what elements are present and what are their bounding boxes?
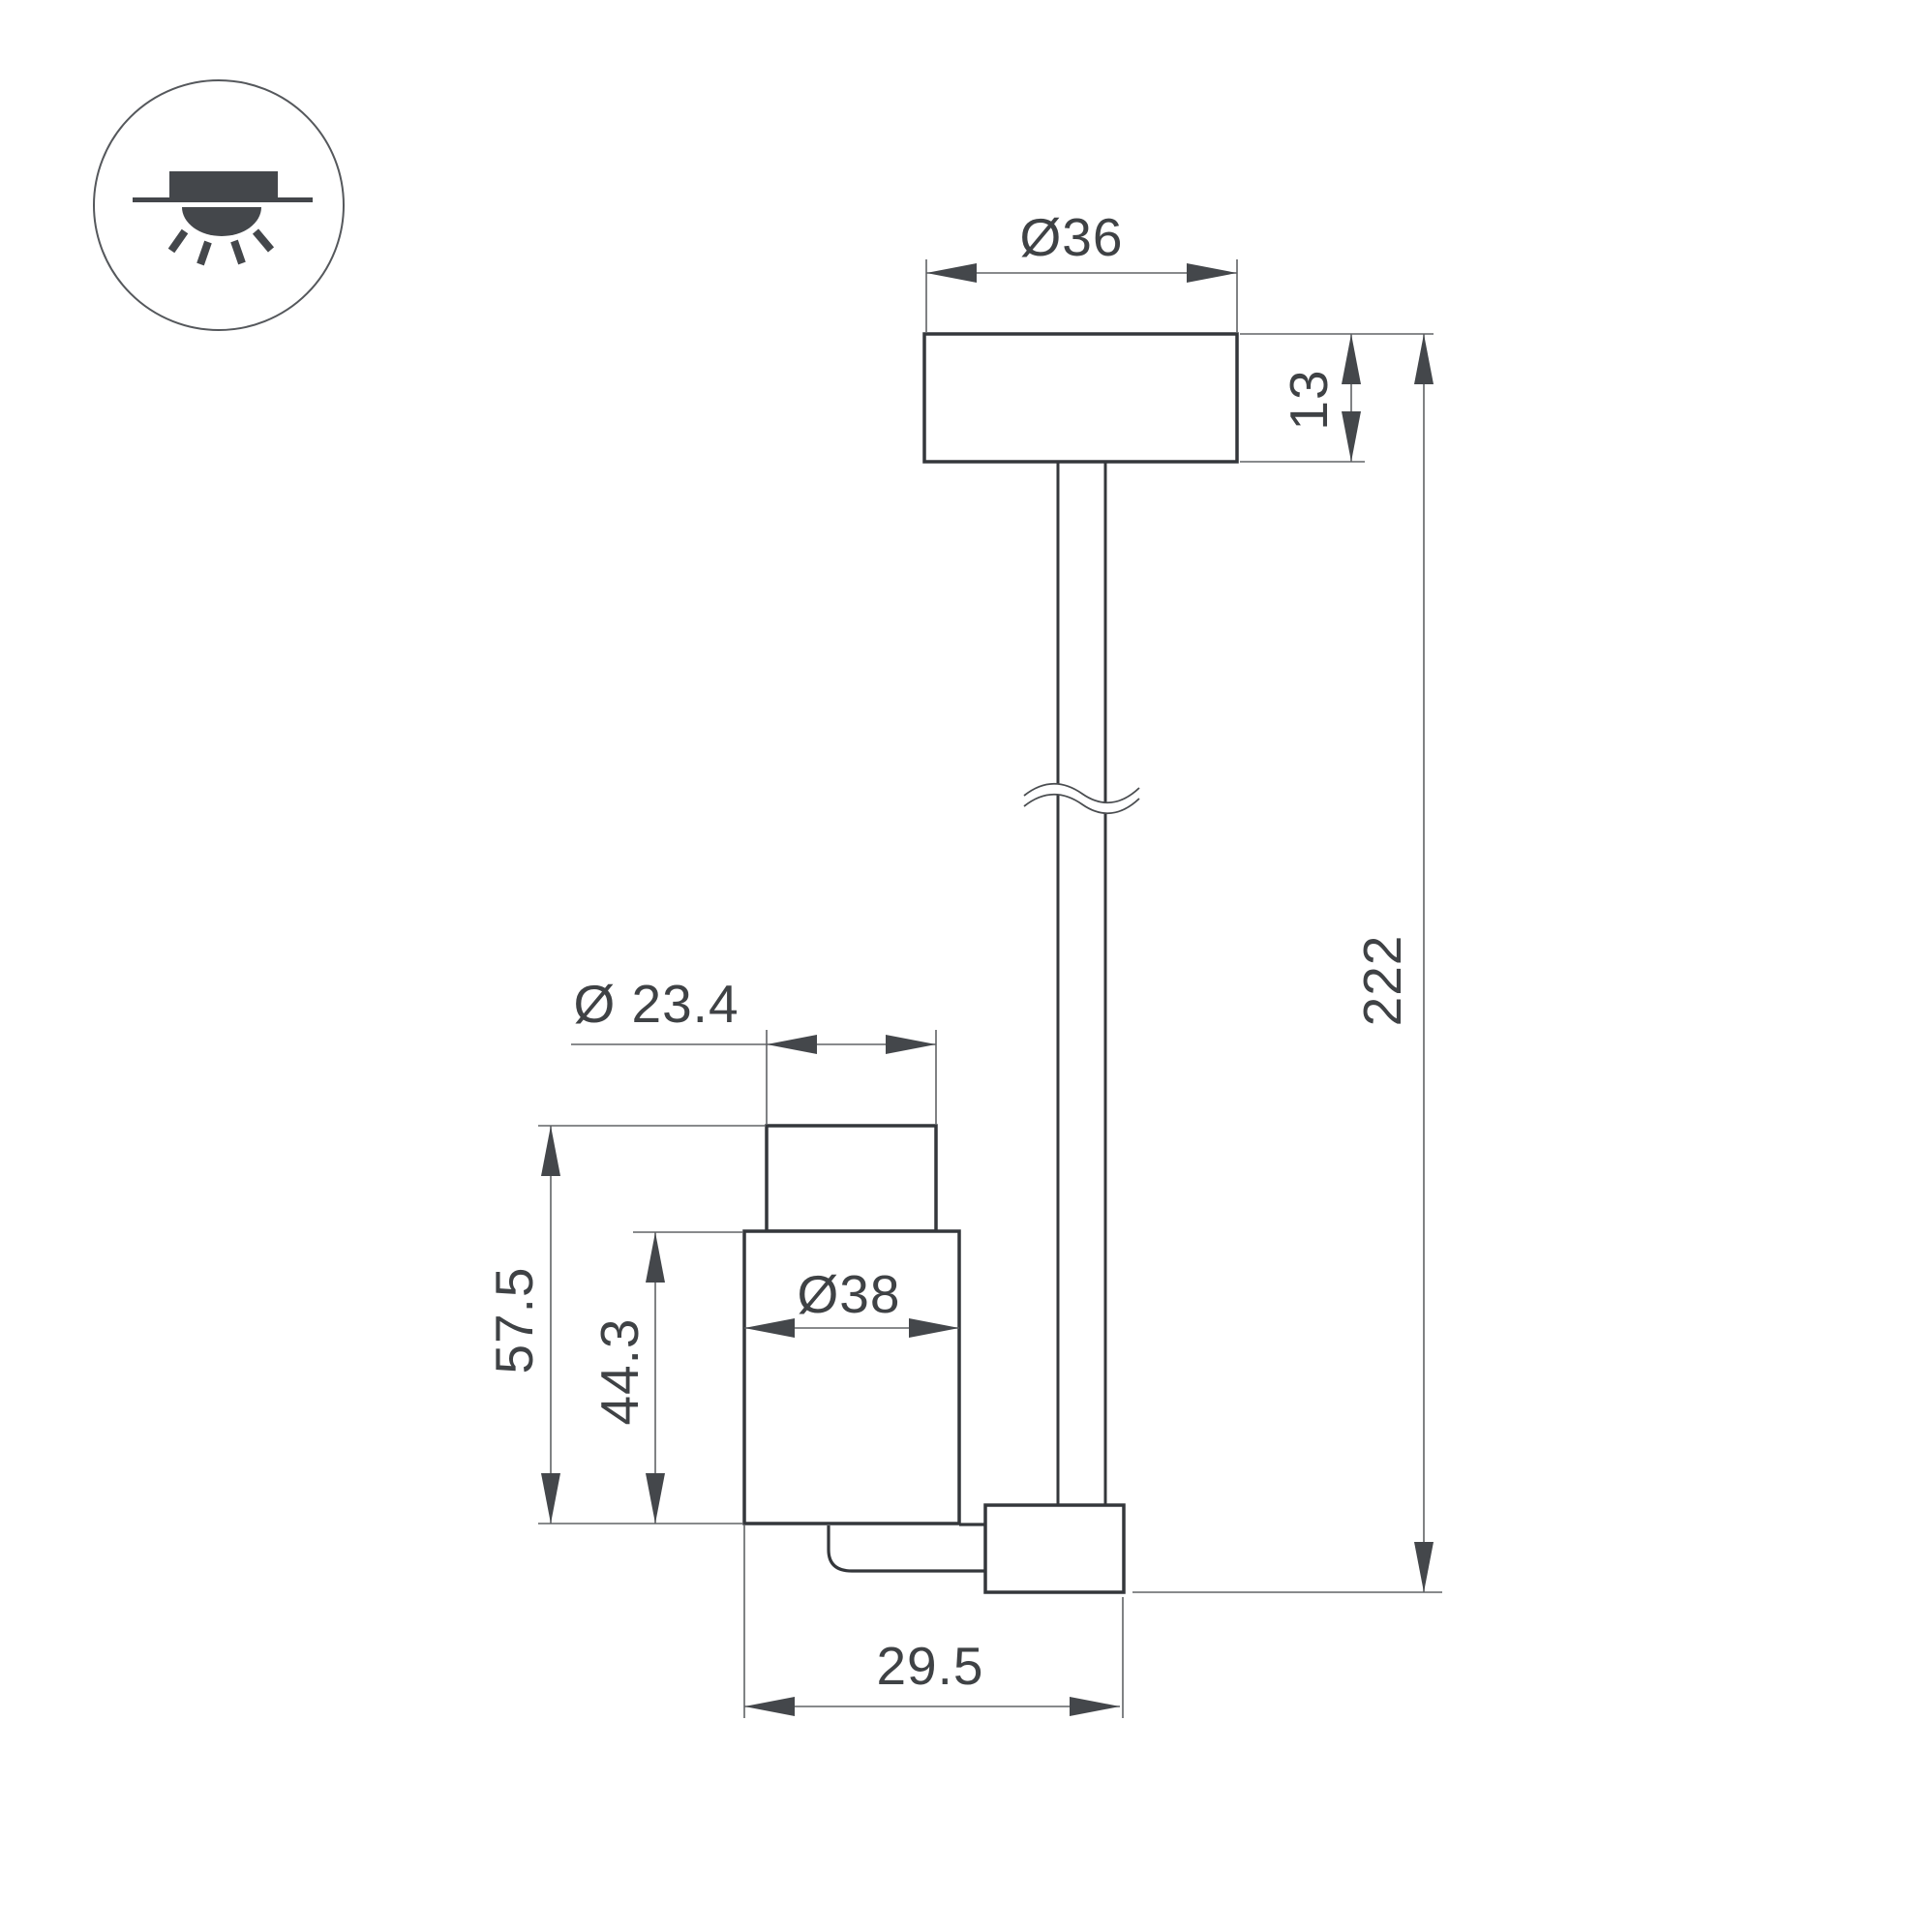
dim-head-body-diameter-label: Ø38	[798, 1264, 901, 1324]
mount-type-icon	[94, 80, 344, 330]
icon-fixture-body	[169, 171, 278, 199]
icon-ceiling-line	[133, 197, 313, 202]
dim-overall-height-label: 222	[1352, 935, 1412, 1027]
dim-head-depth-label: 29.5	[876, 1636, 983, 1696]
dim-head-body-height-label: 44.3	[589, 1317, 649, 1425]
arrowhead	[1187, 263, 1237, 283]
canopy-outline	[924, 334, 1237, 462]
dim-head-top-diameter: Ø 23.4	[571, 974, 936, 1124]
icon-circle	[94, 80, 344, 330]
arrowhead	[1342, 334, 1361, 384]
head-neck-outline	[767, 1126, 936, 1231]
arrowhead	[767, 1035, 817, 1054]
dimension-drawing: Ø36 13 222 Ø 23.4 57.5	[0, 0, 1932, 1932]
dim-head-total-height-label: 57.5	[484, 1266, 544, 1374]
arrowhead	[1342, 411, 1361, 462]
dim-canopy-height: 13	[1240, 334, 1365, 462]
dim-canopy-diameter: Ø36	[926, 207, 1237, 332]
arrowhead	[1414, 334, 1434, 384]
arrowhead	[541, 1473, 560, 1524]
dim-canopy-diameter-label: Ø36	[1020, 207, 1124, 267]
arrowhead	[646, 1473, 665, 1524]
arrowhead	[646, 1232, 665, 1283]
dim-canopy-height-label: 13	[1279, 369, 1339, 430]
dim-overall-height: 222	[1132, 334, 1442, 1592]
arrowhead	[541, 1126, 560, 1176]
dim-head-body-height: 44.3	[589, 1232, 742, 1524]
arrowhead	[744, 1697, 795, 1716]
rod-connector-block	[985, 1505, 1124, 1592]
arrowhead	[1414, 1542, 1434, 1592]
arrowhead	[926, 263, 977, 283]
elbow-tube-outline	[829, 1525, 985, 1571]
arrowhead	[886, 1035, 936, 1054]
dim-head-top-diameter-label: Ø 23.4	[573, 974, 739, 1034]
arrowhead	[1070, 1697, 1120, 1716]
rod-break-symbol	[1024, 784, 1139, 813]
drawing-canvas: Ø36 13 222 Ø 23.4 57.5	[0, 0, 1932, 1932]
luminaire-outline	[744, 334, 1237, 1592]
